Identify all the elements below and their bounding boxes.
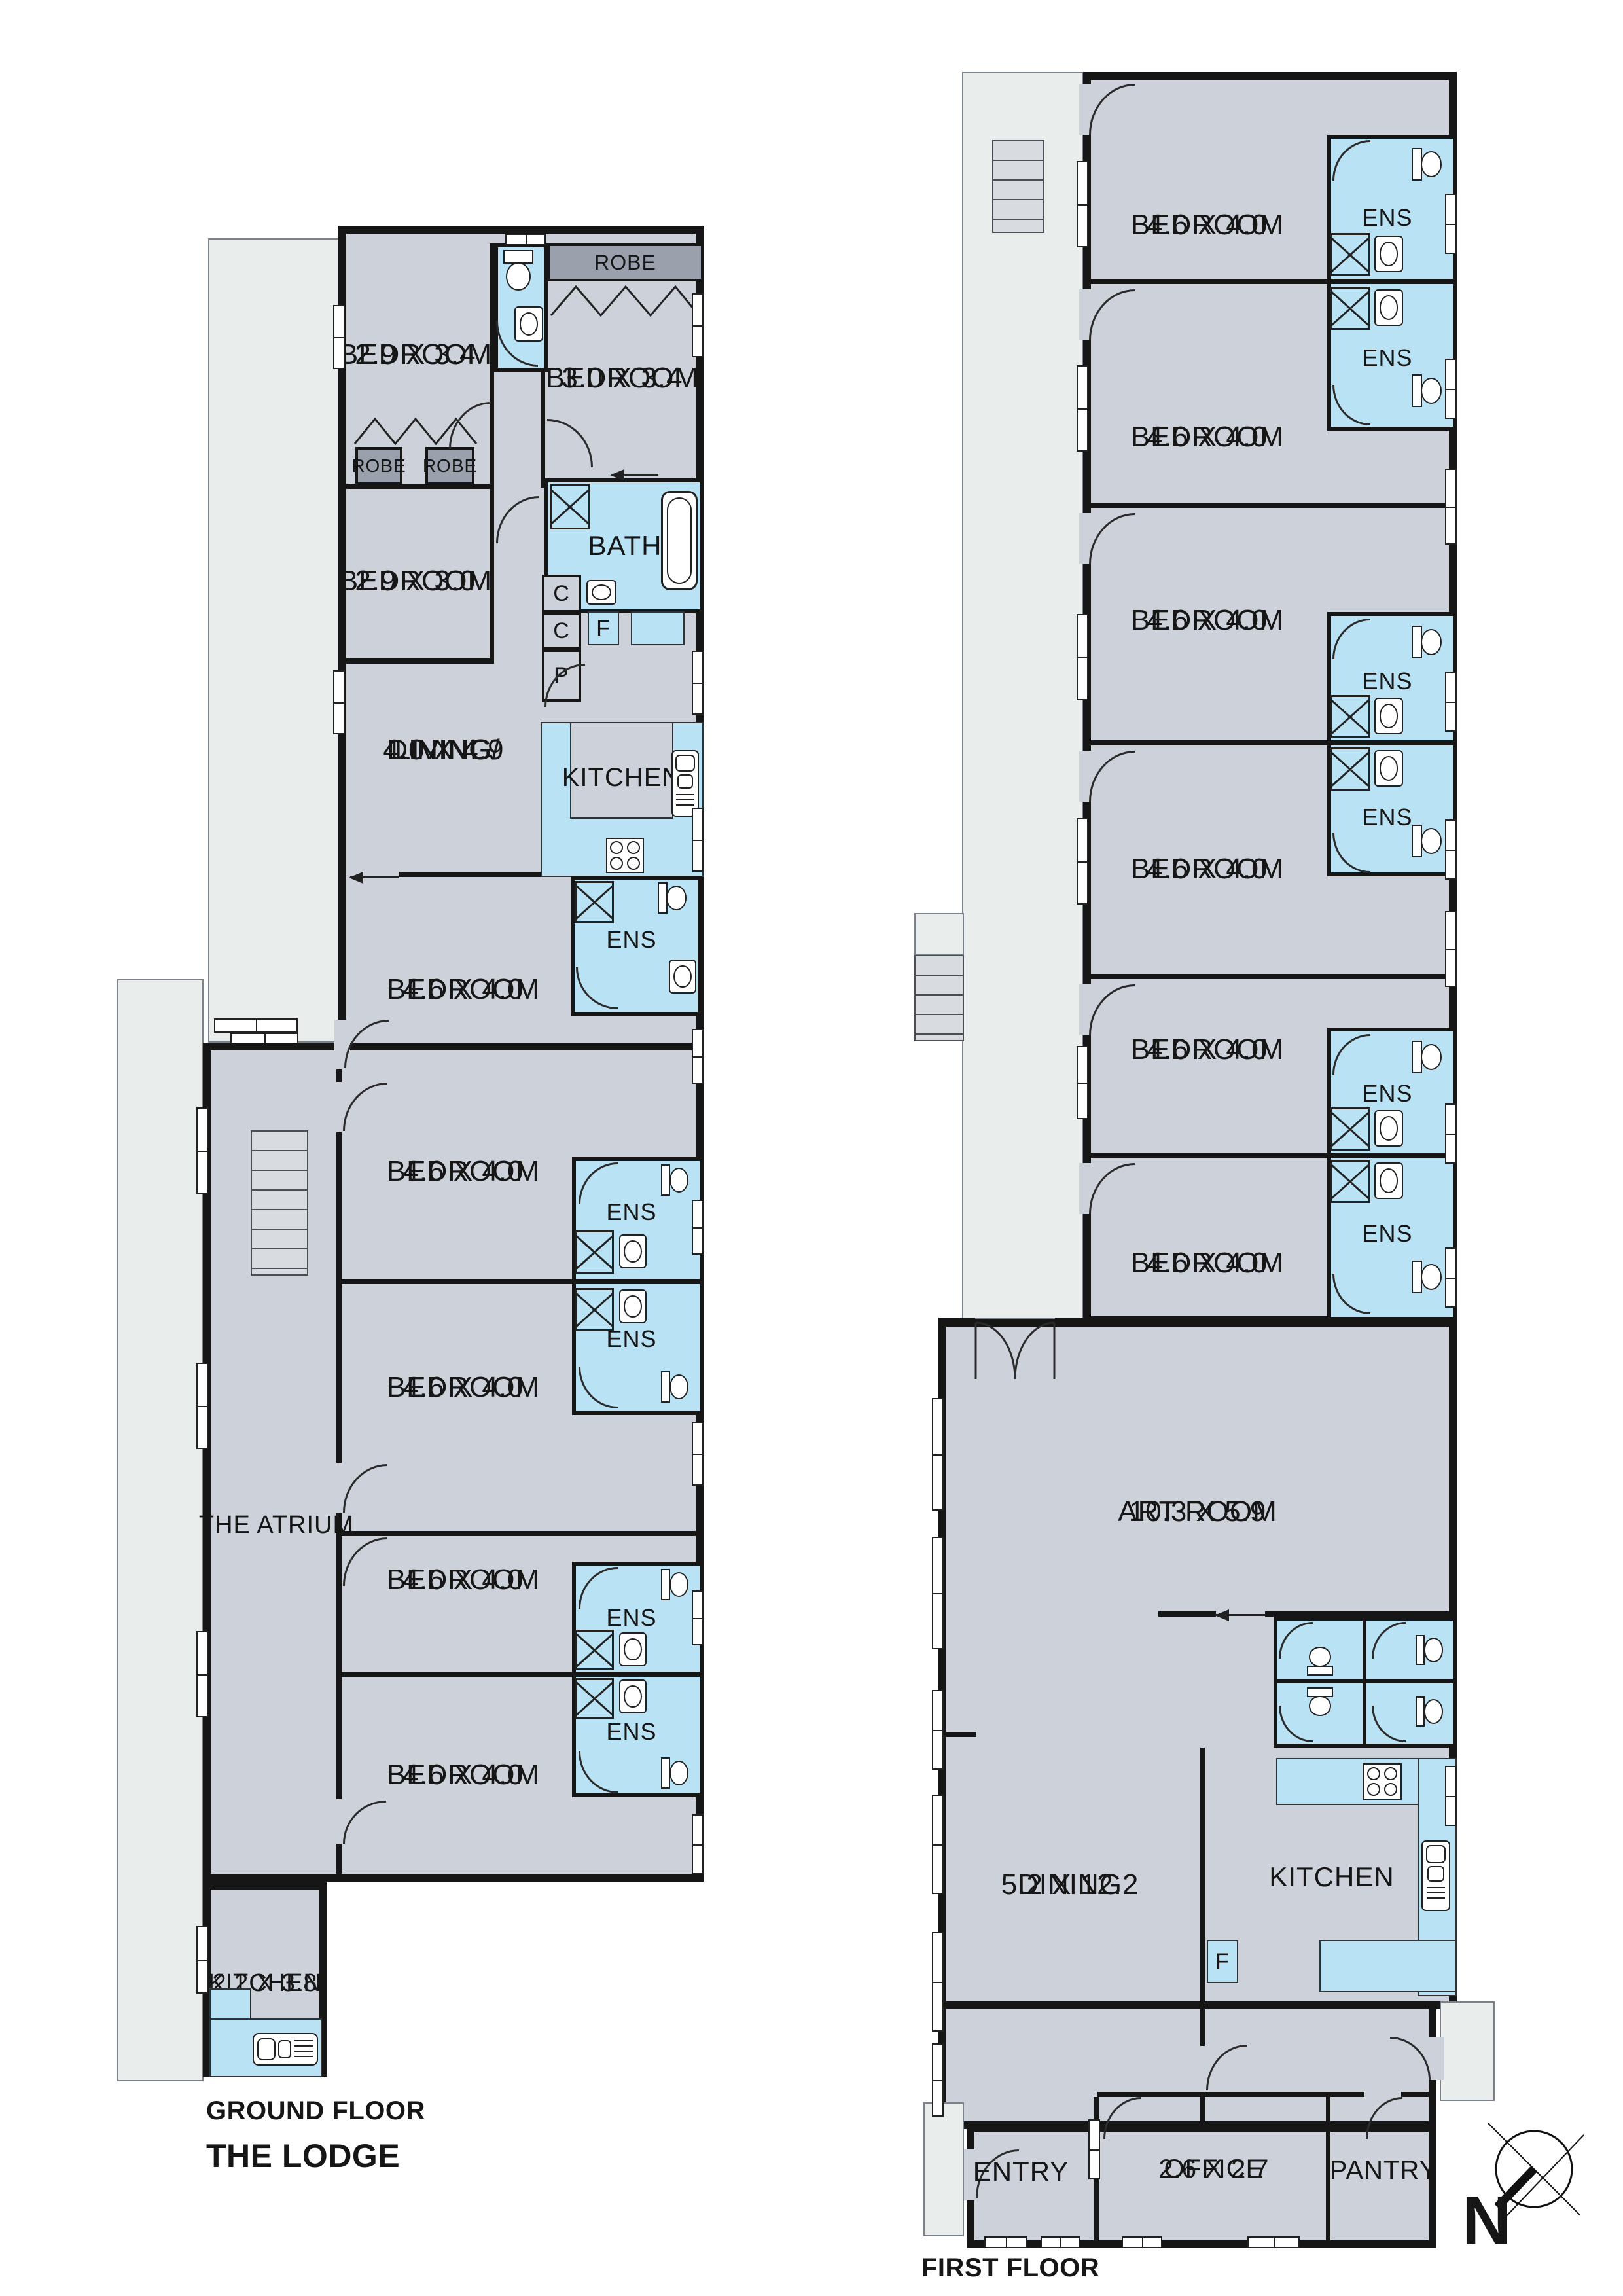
window <box>932 2043 944 2117</box>
stove-icon <box>1363 1763 1402 1800</box>
room-label-ens: ENS <box>1348 1081 1427 1106</box>
basin-icon <box>1374 1162 1403 1199</box>
wall <box>1097 2092 1364 2097</box>
window <box>1247 2236 1300 2248</box>
fridge-space: F <box>1207 1940 1238 1983</box>
window <box>1445 359 1457 419</box>
shower-icon <box>1330 1160 1370 1203</box>
window <box>1122 2236 1162 2248</box>
room-label-kitchen: KITCHEN <box>1266 1863 1397 1892</box>
basin-icon <box>1374 698 1403 734</box>
shower-icon <box>1330 287 1370 330</box>
room-label-bedroom: BEDROOM4.6 X 4.0 <box>1124 1232 1291 1295</box>
wall <box>1327 740 1457 745</box>
room-label-ens: ENS <box>1348 206 1427 230</box>
wall <box>1274 1679 1457 1683</box>
first-floor-plan: ENS ENS ENS ENS ENS ENS <box>0 0 1623 2296</box>
basin-icon <box>1374 236 1403 272</box>
wall <box>938 1732 976 1737</box>
room-label-ens: ENS <box>1348 346 1427 370</box>
window <box>984 2236 1027 2248</box>
basin-icon <box>1374 750 1403 787</box>
balcony <box>962 72 1084 1319</box>
window <box>1445 469 1457 545</box>
wall <box>1200 1748 1205 2046</box>
toilet-icon <box>1305 1647 1335 1676</box>
entry-arrow-icon <box>1216 1614 1266 1616</box>
room-label-ens: ENS <box>1348 1221 1427 1246</box>
toilet-icon <box>1412 372 1442 409</box>
window <box>1077 161 1088 247</box>
window <box>1445 672 1457 732</box>
toilet-icon <box>1412 1039 1442 1075</box>
wall <box>1055 1318 1457 1324</box>
room-label-bedroom: BEDROOM4.6 X 4.0 <box>1124 194 1291 257</box>
staircase <box>992 140 1044 233</box>
wall <box>1265 1611 1457 1617</box>
ff-building-lower <box>938 2001 1436 2129</box>
room-label-bedroom: BEDROOM4.6 X 4.0 <box>1124 838 1291 901</box>
wall <box>938 1318 975 1324</box>
room-label-bedroom: BEDROOM4.6 X 4.0 <box>1124 406 1291 469</box>
double-door-icon <box>974 1321 1056 1382</box>
room-label-ens: ENS <box>1348 669 1427 694</box>
cupboard: C <box>542 575 581 613</box>
wall <box>1087 974 1453 979</box>
room-label-dining: DINING5.2 X 12.2 <box>985 1854 1155 1916</box>
basin-icon <box>1374 289 1403 326</box>
window <box>1445 1766 1457 1826</box>
shower-icon <box>1330 747 1370 791</box>
window <box>1445 1247 1457 1308</box>
toilet-icon <box>1412 624 1442 660</box>
shower-icon <box>1330 233 1370 276</box>
shower-icon <box>1330 695 1370 738</box>
toilet-icon <box>1412 823 1442 859</box>
floorplan-page: ROBE ROBE ROBE BATH C C F P DINING/ LIVI… <box>0 0 1623 2296</box>
toilet-icon <box>1416 1633 1443 1667</box>
room-label-pantry: PANTRY <box>1318 2156 1449 2185</box>
toilet-icon <box>1412 146 1442 183</box>
wall <box>1087 503 1453 508</box>
window <box>1077 614 1088 700</box>
window <box>932 1537 944 1649</box>
rear-landing <box>1440 2001 1495 2101</box>
wall <box>1327 1153 1457 1158</box>
window <box>932 1690 944 1770</box>
window <box>1077 365 1088 452</box>
toilet-icon <box>1305 1687 1335 1716</box>
window <box>932 1398 944 1511</box>
toilet-icon <box>1412 1259 1442 1295</box>
wall <box>1401 2092 1436 2097</box>
shower-icon <box>1330 1107 1370 1151</box>
window <box>1445 819 1457 880</box>
basin-icon <box>1374 1110 1403 1147</box>
window <box>932 1932 944 2032</box>
door-gap <box>1429 2037 1444 2080</box>
sink-icon <box>1421 1840 1450 1911</box>
window <box>1445 1103 1457 1164</box>
floor-title-first: FIRST FLOOR <box>921 2251 1236 2284</box>
window <box>1445 911 1457 987</box>
window <box>1077 1046 1088 1119</box>
wall <box>1158 1611 1216 1617</box>
room-label-art-room: ART ROOM10.3 X 5.9 <box>1113 1480 1283 1543</box>
room-label-office: OFFICE2.6 X 2.7 <box>1130 2139 1298 2199</box>
kitchen-counter <box>1319 1940 1457 1992</box>
north-label: N <box>1454 2185 1520 2257</box>
window <box>1445 194 1457 254</box>
stair-landing <box>914 913 964 955</box>
room-label-bedroom: BEDROOM4.6 X 4.0 <box>1124 589 1291 652</box>
window <box>1088 2119 1100 2179</box>
wall <box>1327 279 1457 284</box>
room-label-bedroom: BEDROOM4.6 X 4.0 <box>1124 1018 1291 1081</box>
external-staircase <box>914 955 964 1041</box>
window <box>1077 818 1088 905</box>
window <box>932 1795 944 1894</box>
room-label-entry: ENTRY <box>955 2157 1086 2186</box>
window <box>1041 2236 1080 2248</box>
toilet-icon <box>1416 1695 1443 1729</box>
